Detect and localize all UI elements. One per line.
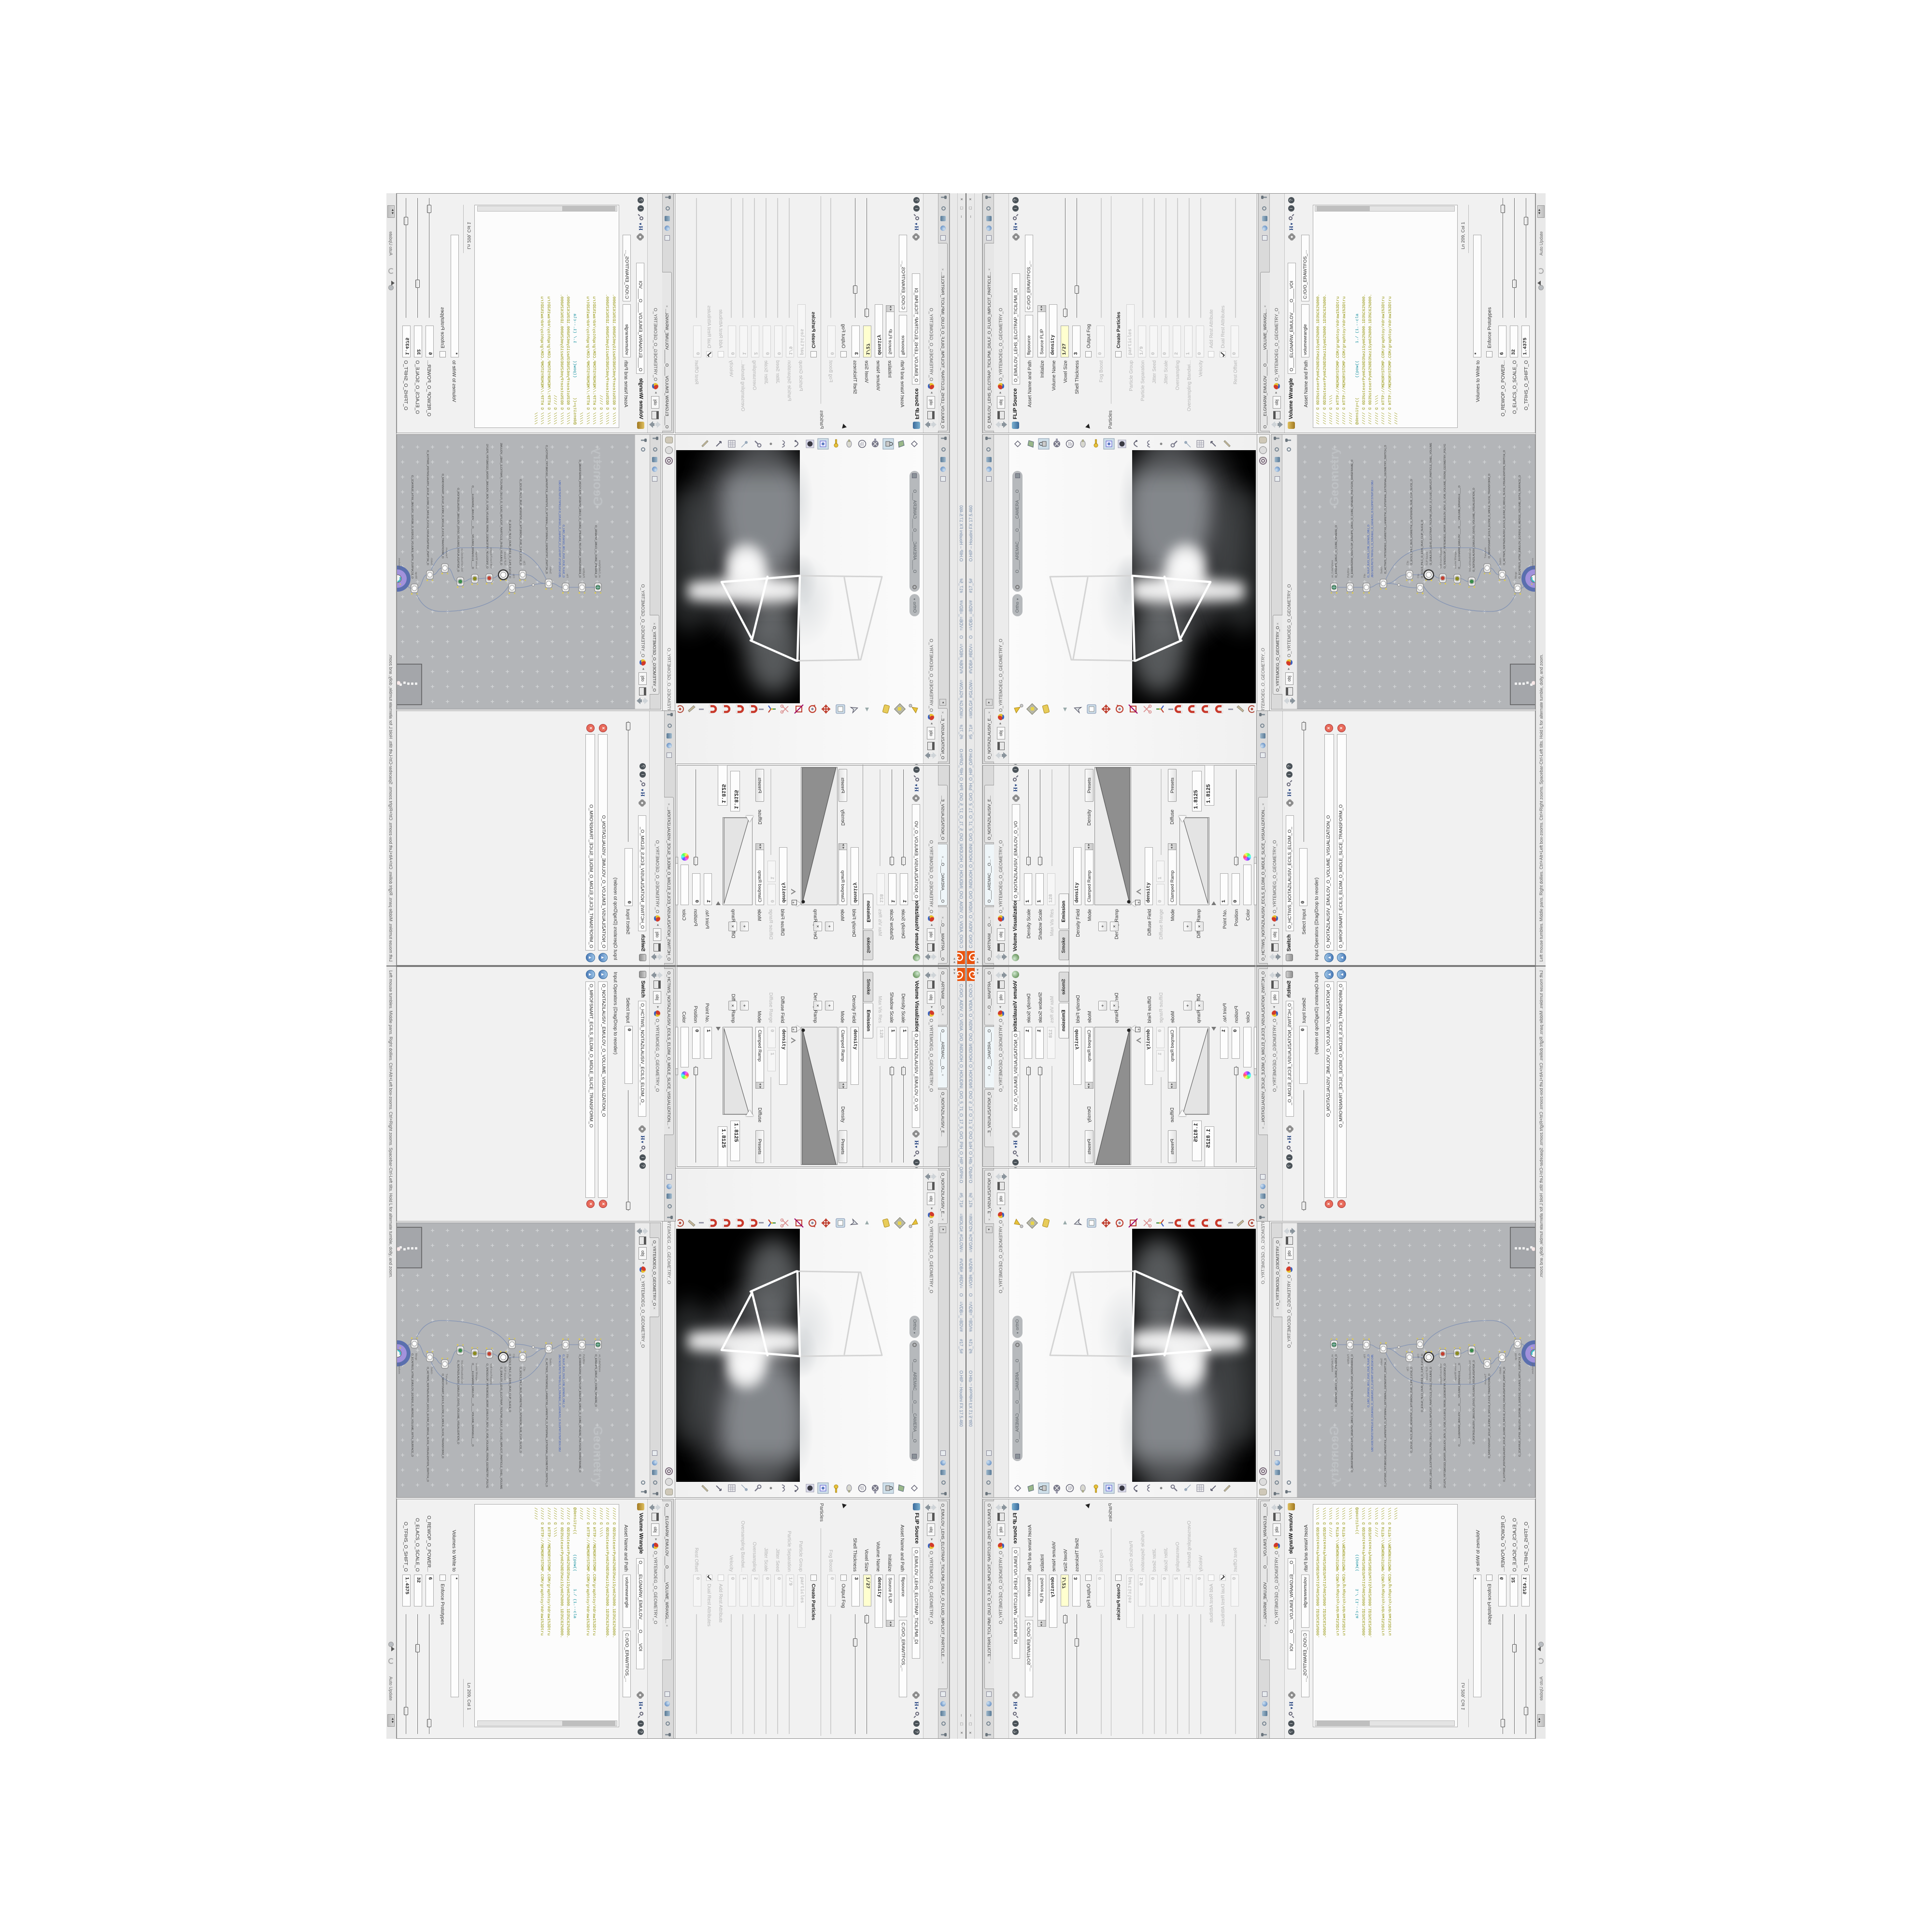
svg-text:O____ELGNARW_EMULOV____O____VO: O____ELGNARW_EMULOV____O____VOLUME_WRANG… [471,1363,474,1447]
svg-text:O_ECILS_PILC_O_EDIS_RUO_CLIP_S: O_ECILS_PILC_O_EDIS_RUO_CLIP_SLICE_O [1421,520,1424,578]
svg-text:O_ECILS_PILC_BUS_ROIRETNI_O_IN: O_ECILS_PILC_BUS_ROIRETNI_O_INTERIOR_SUB… [519,479,522,565]
svg-text:O_ECAFRUS_HTIW_EMULOV_EGREM_O_: O_ECAFRUS_HTIW_EMULOV_EGREM_O_MERGE_VOLU… [1519,475,1521,579]
svg-text:Volume Wrangle: Volume Wrangle [475,1363,478,1381]
svg-text:Geometry: Geometry [591,1426,605,1485]
svg-text:an_CubeSphere: an_CubeSphere [1331,560,1334,578]
svg-text:O_ECILS_PILC_BUS_ROIRETNI_O_IN: O_ECILS_PILC_BUS_ROIRETNI_O_INTERIOR_SUB… [519,1367,522,1453]
svg-text:O_NOITAZILAUSIV_EMULOV_O(VO)_V: O_NOITAZILAUSIV_EMULOV_O(VO)_VOLUME_VISU… [1473,487,1476,572]
svg-text:O_MROFSNART_ECILS_ELDIM_O_MIDL: O_MROFSNART_ECILS_ELDIM_O_MIDLE_SLICE_TR… [441,473,444,558]
svg-text:O_ECAFRUS_HTIW_EMULOV_EGREM_O_: O_ECAFRUS_HTIW_EMULOV_EGREM_O_MERGE_VOLU… [411,1353,413,1457]
svg-text:Clip: Clip [523,1367,526,1371]
svg-text:Volume Wrangle: Volume Wrangle [475,551,478,569]
svg-text:Clip: Clip [512,574,515,578]
svg-text:O_HCTIWS_NOITAZILAUSIV_ECILS_E: O_HCTIWS_NOITAZILAUSIV_ECILS_ELDIM_O_MID… [426,1367,429,1482]
svg-text:Transform: Transform [1484,547,1487,558]
svg-text:VolumeVisualizatSlice: VolumeVisualizatSlice [1469,1360,1472,1384]
svg-text:Transform: Transform [1484,1374,1487,1385]
svg-text:PolyWire: PolyWire [582,1354,585,1364]
svg-text:O_ECILS_PILC_O_EDIS_RUO_CLIP_S: O_ECILS_PILC_O_EDIS_RUO_CLIP_SLICE_O [508,520,511,578]
svg-text:JBO.NO3,PETS.TRFGLS_O_5SUNEG_O: JBO.NO3,PETS.TRFGLS_O_5SUNEG_O_GENUS3_O.… [558,480,561,578]
svg-text:JBO.NO3,PETS.TRFGLS_O_5SUNEG_O: JBO.NO3,PETS.TRFGLS_O_5SUNEG_O_GENUS3_O.… [1371,480,1374,578]
svg-text:Switch: Switch [430,1367,433,1374]
svg-text:Clip: Clip [512,1354,515,1358]
svg-text:Transform: Transform [445,547,448,558]
svg-text:FLIP Source: FLIP Source [503,552,506,565]
svg-text:Switch: Switch [1380,1358,1383,1365]
svg-text:VDB from Polygons: VDB from Polygons [489,547,492,568]
svg-text:Geometry: Geometry [1327,1426,1341,1485]
svg-text:O_EMULOV_LEHS_ELCITRAP_TICILPM: O_EMULOV_LEHS_ELCITRAP_TICILPMI_DIULF_O_… [499,443,502,565]
svg-text:O_ECAFRUS_HTIW_EMULOV_EGREM_O_: O_ECAFRUS_HTIW_EMULOV_EGREM_O_MERGE_VOLU… [411,475,413,579]
svg-text:File: File [566,1354,568,1358]
svg-text:Merge: Merge [414,1353,417,1360]
svg-text:O_SNOGILOP_YRTEMOEG_MORF_EMULO: O_SNOGILOP_YRTEMOEG_MORF_EMULOV_BDV_O_VD… [1444,1364,1447,1488]
svg-text:VDB from Polygons: VDB from Polygons [1440,1364,1443,1385]
svg-text:Transform: Transform [1532,1363,1534,1374]
svg-text:O____ELGNARW_EMULOV____O____VO: O____ELGNARW_EMULOV____O____VOLUME_WRANG… [1458,485,1461,569]
svg-text:O_ECILS_PILC_BUS_ROIRETNI_O_IN: O_ECILS_PILC_BUS_ROIRETNI_O_INTERIOR_SUB… [1410,1367,1413,1453]
svg-text:VDB from Polygons: VDB from Polygons [489,1364,492,1385]
svg-text:Clip: Clip [1406,1367,1409,1371]
svg-text:O_EMULOV_LEHS_ELCITRAP_TICILPM: O_EMULOV_LEHS_ELCITRAP_TICILPMI_DIULF_O_… [499,1367,502,1489]
svg-text:O_NOITAZILAUSIV_EMULOV_O(VO)_V: O_NOITAZILAUSIV_EMULOV_O(VO)_VOLUME_VISU… [1473,1360,1476,1445]
svg-text:File: File [1364,1354,1366,1358]
svg-text:O_ECILS_PILC_BUS_ROIRETNI_O_IN: O_ECILS_PILC_BUS_ROIRETNI_O_INTERIOR_SUB… [1410,479,1413,565]
svg-text:VolumeVisualizatSlice: VolumeVisualizatSlice [460,548,463,572]
svg-text:O_HCTIWS_NOITAZILAUSIV_ECILS_E: O_HCTIWS_NOITAZILAUSIV_ECILS_ELDIM_O_MID… [1503,450,1506,565]
svg-text:O_HCTIWS_YRTEMOEG_LANRETXE_LAN: O_HCTIWS_YRTEMOEG_LANRETXE_LANRETNI_O_IN… [1384,1358,1387,1487]
svg-text:FLIP Source: FLIP Source [503,1367,506,1380]
svg-text:O_MROFSNART_ECILS_ELDIM_O_MIDL: O_MROFSNART_ECILS_ELDIM_O_MIDLE_SLICE_TR… [1488,1374,1491,1459]
svg-text:JBO.NO3,PETS.TRFGLS_O_5SUNEG_O: JBO.NO3,PETS.TRFGLS_O_5SUNEG_O_GENUS3_O.… [1371,1354,1374,1452]
svg-text:Transform: Transform [1532,558,1534,569]
svg-text:VolumeVisualizatSlice: VolumeVisualizatSlice [460,1360,463,1384]
svg-text:an_CubeSphere: an_CubeSphere [598,1354,601,1372]
svg-text:VolumeVisualizatSlice: VolumeVisualizatSlice [1469,548,1472,572]
svg-text:O_ECILS_PILC_O_EDIS_RUO_CLIP_S: O_ECILS_PILC_O_EDIS_RUO_CLIP_SLICE_O [1421,1354,1424,1412]
svg-text:Volume Wrangle: Volume Wrangle [1454,551,1457,569]
svg-text:O_EMULOV_LEHS_ELCITRAP_TICILPM: O_EMULOV_LEHS_ELCITRAP_TICILPMI_DIULF_O_… [1430,1367,1433,1489]
svg-text:File: File [566,574,568,578]
svg-text:Clip: Clip [523,561,526,565]
svg-text:an_CubeSphere: an_CubeSphere [1331,1354,1334,1372]
svg-text:Transform: Transform [398,558,400,569]
svg-text:PolyWire: PolyWire [1347,1354,1350,1364]
svg-text:O_ECILS_PILC_O_EDIS_RUO_CLIP_S: O_ECILS_PILC_O_EDIS_RUO_CLIP_SLICE_O [508,1354,511,1412]
svg-text:O_EMARFERIW_NOGYLOP_EREHPS_EBU: O_EMARFERIW_NOGYLOP_EREHPS_EBUC_D_CUBE_S… [578,1354,581,1473]
svg-text:O_EREHPS_EBUC_D_CUBE_SPHERE_O: O_EREHPS_EBUC_D_CUBE_SPHERE_O [594,1354,597,1407]
svg-text:Geometry: Geometry [1327,447,1341,506]
svg-text:FLIP Source: FLIP Source [1426,1367,1429,1380]
svg-text:Switch: Switch [1499,1367,1502,1374]
svg-text:O_SNOGILOP_YRTEMOEG_MORF_EMULO: O_SNOGILOP_YRTEMOEG_MORF_EMULOV_BDV_O_VD… [1444,444,1447,568]
svg-text:PolyWire: PolyWire [582,568,585,578]
svg-text:O_EMARFERIW_NOGYLOP_EREHPS_EBU: O_EMARFERIW_NOGYLOP_EREHPS_EBUC_D_CUBE_S… [1351,459,1354,578]
svg-text:Switch: Switch [549,1358,552,1365]
svg-text:O_EMARFERIW_NOGYLOP_EREHPS_EBU: O_EMARFERIW_NOGYLOP_EREHPS_EBUC_D_CUBE_S… [1351,1354,1354,1473]
svg-text:Geometry: Geometry [591,447,605,506]
svg-text:O_HCTIWS_YRTEMOEG_LANRETXE_LAN: O_HCTIWS_YRTEMOEG_LANRETXE_LANRETNI_O_IN… [545,1358,548,1487]
svg-text:O_EREHPS_EBUC_D_CUBE_SPHERE_O: O_EREHPS_EBUC_D_CUBE_SPHERE_O [1335,1354,1338,1407]
svg-text:O_SULP_BJO_DUS_LOB_GENUS_OBJ_O: O_SULP_BJO_DUS_LOB_GENUS_OBJ_O [1367,1354,1370,1407]
svg-text:O_HCTIWS_YRTEMOEG_LANRETXE_LAN: O_HCTIWS_YRTEMOEG_LANRETXE_LANRETNI_O_IN… [545,445,548,574]
svg-text:O_ECAFRUS_HTIW_EMULOV_EGREM_O_: O_ECAFRUS_HTIW_EMULOV_EGREM_O_MERGE_VOLU… [1519,1353,1521,1457]
svg-text:FLIP Source: FLIP Source [1426,552,1429,565]
svg-text:O_SULP_BJO_DUS_LOB_GENUS_OBJ_O: O_SULP_BJO_DUS_LOB_GENUS_OBJ_O [562,525,565,578]
svg-text:Volume Wrangle: Volume Wrangle [1454,1363,1457,1381]
svg-text:Clip: Clip [1417,574,1420,578]
svg-text:O_NOITAZILAUSIV_EMULOV_O(VO)_V: O_NOITAZILAUSIV_EMULOV_O(VO)_VOLUME_VISU… [456,487,459,572]
svg-text:O_HCTIWS_NOITAZILAUSIV_ECILS_E: O_HCTIWS_NOITAZILAUSIV_ECILS_ELDIM_O_MID… [426,450,429,565]
svg-text:O_MROFSNART_ECILS_ELDIM_O_MIDL: O_MROFSNART_ECILS_ELDIM_O_MIDLE_SLICE_TR… [1488,473,1491,558]
svg-text:Merge: Merge [414,572,417,579]
svg-text:O_HCTIWS_YRTEMOEG_LANRETXE_LAN: O_HCTIWS_YRTEMOEG_LANRETXE_LANRETNI_O_IN… [1384,445,1387,574]
svg-text:Transform: Transform [398,1363,400,1374]
svg-text:an_CubeSphere: an_CubeSphere [598,560,601,578]
svg-text:O_EMARFERIW_NOGYLOP_EREHPS_EBU: O_EMARFERIW_NOGYLOP_EREHPS_EBUC_D_CUBE_S… [578,459,581,578]
svg-text:Transform: Transform [445,1374,448,1385]
svg-text:O_SULP_BJO_DUS_LOB_GENUS_OBJ_O: O_SULP_BJO_DUS_LOB_GENUS_OBJ_O [1367,525,1370,578]
svg-text:O_EREHPS_EBUC_D_CUBE_SPHERE_O: O_EREHPS_EBUC_D_CUBE_SPHERE_O [1335,525,1338,578]
svg-text:O_SNOGILOP_YRTEMOEG_MORF_EMULO: O_SNOGILOP_YRTEMOEG_MORF_EMULOV_BDV_O_VD… [485,444,488,568]
svg-text:Switch: Switch [1499,558,1502,565]
svg-text:O____ELGNARW_EMULOV____O____VO: O____ELGNARW_EMULOV____O____VOLUME_WRANG… [471,485,474,569]
svg-text:Switch: Switch [430,558,433,565]
svg-text:VDB from Polygons: VDB from Polygons [1440,547,1443,568]
svg-text:Merge: Merge [1515,1353,1518,1360]
svg-text:O_HCTIWS_NOITAZILAUSIV_ECILS_E: O_HCTIWS_NOITAZILAUSIV_ECILS_ELDIM_O_MID… [1503,1367,1506,1482]
svg-text:JBO.NO3,PETS.TRFGLS_O_5SUNEG_O: JBO.NO3,PETS.TRFGLS_O_5SUNEG_O_GENUS3_O.… [558,1354,561,1452]
svg-text:O_EREHPS_EBUC_D_CUBE_SPHERE_O: O_EREHPS_EBUC_D_CUBE_SPHERE_O [594,525,597,578]
svg-text:Switch: Switch [1380,567,1383,574]
svg-text:PolyWire: PolyWire [1347,568,1350,578]
svg-text:O_MROFSNART_ECILS_ELDIM_O_MIDL: O_MROFSNART_ECILS_ELDIM_O_MIDLE_SLICE_TR… [441,1374,444,1459]
svg-text:O_EMULOV_LEHS_ELCITRAP_TICILPM: O_EMULOV_LEHS_ELCITRAP_TICILPMI_DIULF_O_… [1430,443,1433,565]
svg-text:O____ELGNARW_EMULOV____O____VO: O____ELGNARW_EMULOV____O____VOLUME_WRANG… [1458,1363,1461,1447]
svg-text:File: File [1364,574,1366,578]
svg-text:Clip: Clip [1406,561,1409,565]
svg-text:Merge: Merge [1515,572,1518,579]
svg-text:Clip: Clip [1417,1354,1420,1358]
svg-text:O_NOITAZILAUSIV_EMULOV_O(VO)_V: O_NOITAZILAUSIV_EMULOV_O(VO)_VOLUME_VISU… [456,1360,459,1445]
svg-text:O_SNOGILOP_YRTEMOEG_MORF_EMULO: O_SNOGILOP_YRTEMOEG_MORF_EMULOV_BDV_O_VD… [485,1364,488,1488]
svg-text:O_SULP_BJO_DUS_LOB_GENUS_OBJ_O: O_SULP_BJO_DUS_LOB_GENUS_OBJ_O [562,1354,565,1407]
svg-text:Switch: Switch [549,567,552,574]
